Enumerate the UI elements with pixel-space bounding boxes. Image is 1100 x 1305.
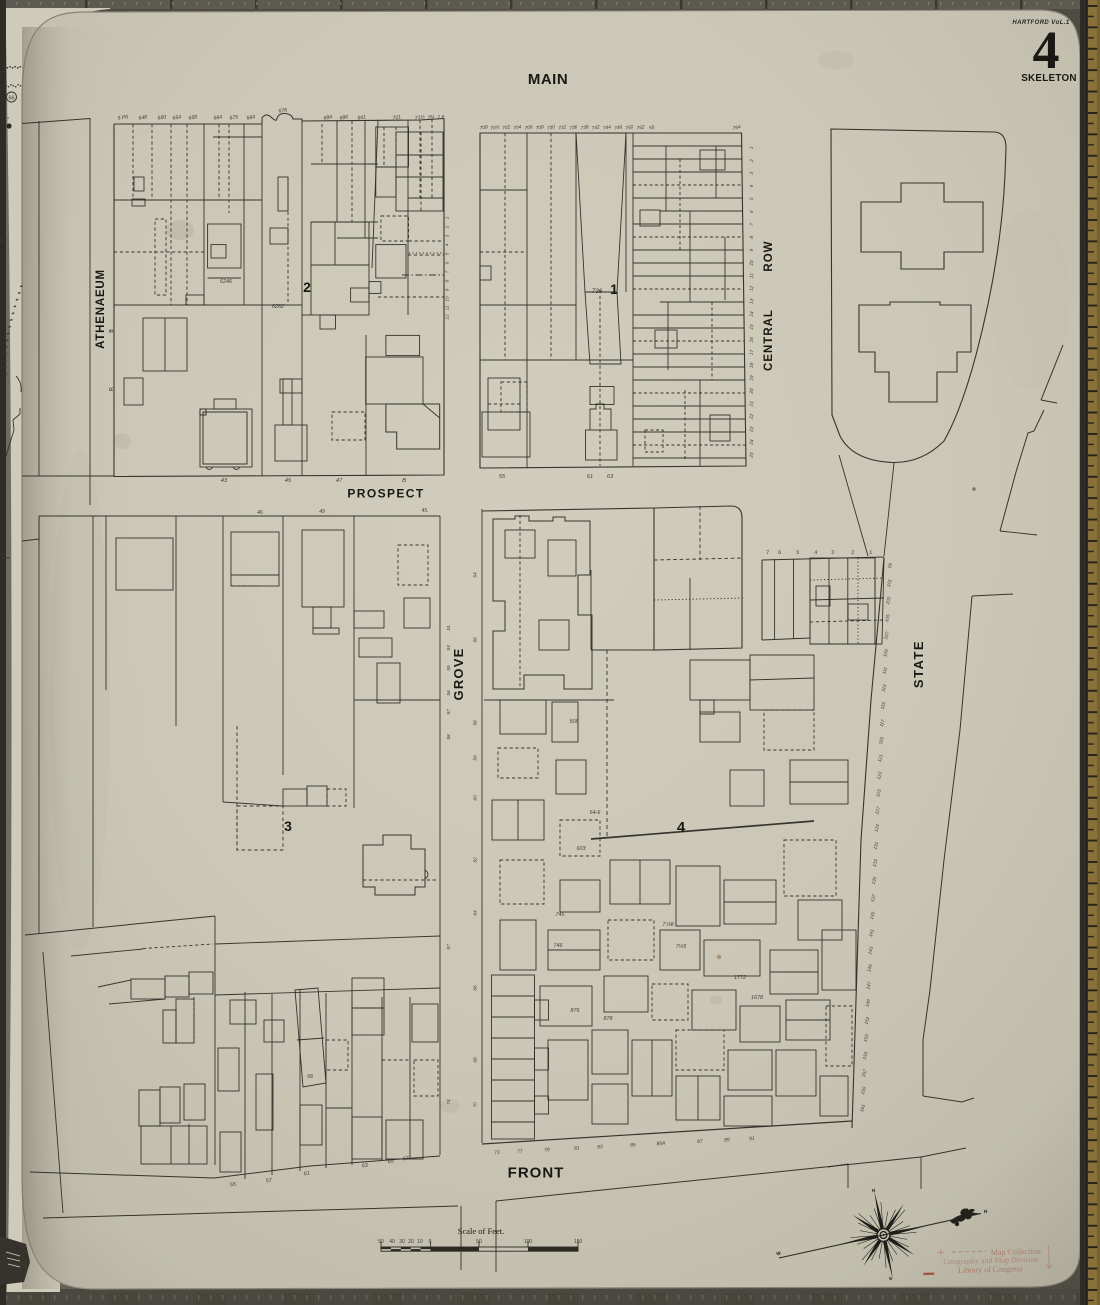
svg-text:650: 650 bbox=[157, 114, 167, 121]
svg-text:70: 70 bbox=[473, 1102, 479, 1108]
svg-text:64: 64 bbox=[473, 910, 479, 916]
svg-text:876: 876 bbox=[571, 1008, 580, 1014]
svg-text:2: 2 bbox=[303, 279, 311, 295]
svg-text:58: 58 bbox=[446, 734, 452, 740]
svg-text:ROW: ROW bbox=[763, 240, 775, 271]
svg-text:57: 57 bbox=[446, 944, 452, 950]
svg-text:7N: 7N bbox=[427, 115, 435, 122]
svg-text:53: 53 bbox=[446, 645, 452, 651]
svg-text:74: 74 bbox=[446, 1099, 452, 1105]
svg-text:68: 68 bbox=[473, 1057, 479, 1063]
svg-text:684: 684 bbox=[246, 114, 256, 121]
svg-text:6246: 6246 bbox=[220, 279, 232, 285]
svg-text:30: 30 bbox=[399, 1239, 405, 1245]
svg-text:4: 4 bbox=[445, 243, 450, 246]
svg-text:7.6: 7.6 bbox=[437, 115, 445, 122]
svg-text:40: 40 bbox=[389, 1239, 395, 1245]
svg-text:63: 63 bbox=[361, 1163, 368, 1170]
svg-text:91: 91 bbox=[749, 1136, 755, 1142]
svg-text:83: 83 bbox=[597, 1144, 603, 1150]
svg-text:691: 691 bbox=[357, 114, 367, 121]
svg-text:STATE: STATE bbox=[911, 640, 926, 688]
svg-text:648: 648 bbox=[138, 114, 148, 121]
svg-text:5: 5 bbox=[445, 252, 450, 255]
svg-text:R: R bbox=[109, 387, 115, 391]
svg-text:ST: ST bbox=[1, 549, 7, 555]
svg-text:745: 745 bbox=[556, 912, 566, 918]
svg-text:654: 654 bbox=[172, 114, 182, 121]
svg-text:81: 81 bbox=[574, 1145, 580, 1151]
svg-text:61: 61 bbox=[587, 474, 593, 480]
svg-text:1678: 1678 bbox=[751, 995, 763, 1001]
svg-text:85A: 85A bbox=[656, 1141, 666, 1148]
svg-text:61: 61 bbox=[303, 1171, 310, 1178]
svg-text:47: 47 bbox=[336, 478, 343, 484]
svg-text:4: 4 bbox=[1033, 20, 1060, 80]
svg-text:57: 57 bbox=[446, 709, 452, 715]
svg-text:B: B bbox=[402, 478, 406, 484]
svg-text:64-6: 64-6 bbox=[590, 810, 601, 816]
svg-text:59: 59 bbox=[473, 755, 479, 761]
svg-text:9: 9 bbox=[445, 288, 450, 291]
svg-text:736: 736 bbox=[592, 288, 603, 295]
svg-text:8: 8 bbox=[445, 279, 450, 282]
svg-text:68: 68 bbox=[307, 1074, 313, 1080]
svg-text:66: 66 bbox=[8, 96, 14, 102]
svg-text:11: 11 bbox=[445, 305, 450, 310]
svg-text:20: 20 bbox=[408, 1239, 414, 1245]
svg-text:6262: 6262 bbox=[272, 304, 284, 310]
svg-text:603: 603 bbox=[577, 846, 586, 852]
svg-text:746: 746 bbox=[554, 943, 563, 949]
svg-text:45.: 45. bbox=[422, 508, 429, 514]
svg-text:51: 51 bbox=[446, 625, 452, 631]
svg-text:7⅓5: 7⅓5 bbox=[676, 944, 687, 950]
svg-text:508: 508 bbox=[570, 719, 579, 725]
svg-text:55: 55 bbox=[446, 665, 452, 671]
svg-text:85: 85 bbox=[630, 1142, 636, 1148]
svg-text:60: 60 bbox=[473, 795, 479, 801]
svg-text:1: 1 bbox=[610, 281, 618, 297]
svg-text:45: 45 bbox=[285, 478, 292, 484]
svg-text:7⅕8: 7⅕8 bbox=[662, 922, 673, 928]
svg-text:89: 89 bbox=[724, 1137, 730, 1143]
svg-text:GROVE: GROVE bbox=[451, 648, 466, 701]
svg-text:3: 3 bbox=[445, 234, 450, 237]
svg-text:66: 66 bbox=[473, 985, 479, 991]
svg-text:PROSPECT: PROSPECT bbox=[347, 487, 424, 501]
svg-text:Scale of Feet.: Scale of Feet. bbox=[458, 1226, 505, 1236]
svg-text:12: 12 bbox=[445, 314, 450, 320]
svg-text:77: 77 bbox=[517, 1148, 523, 1154]
svg-text:701: 701 bbox=[392, 114, 402, 121]
svg-text:56: 56 bbox=[473, 637, 479, 643]
svg-text:62: 62 bbox=[473, 857, 479, 863]
svg-text:664: 664 bbox=[213, 114, 223, 121]
svg-text:73: 73 bbox=[494, 1150, 500, 1156]
svg-text:56: 56 bbox=[446, 690, 452, 696]
svg-text:676: 676 bbox=[278, 107, 288, 114]
svg-text:": " bbox=[7, 118, 9, 124]
svg-text:10: 10 bbox=[417, 1239, 423, 1245]
svg-text:4: 4 bbox=[677, 819, 686, 836]
svg-text:MAIN: MAIN bbox=[528, 71, 568, 88]
svg-text:878: 878 bbox=[604, 1016, 613, 1022]
svg-text:87: 87 bbox=[697, 1139, 703, 1145]
svg-text:58: 58 bbox=[473, 720, 479, 726]
svg-text:SKELETON: SKELETON bbox=[1021, 73, 1077, 84]
svg-text:43: 43 bbox=[221, 478, 228, 484]
svg-text:79: 79 bbox=[544, 1147, 550, 1153]
svg-text:684: 684 bbox=[323, 114, 333, 121]
svg-text:7: 7 bbox=[445, 270, 450, 273]
svg-text:55: 55 bbox=[499, 474, 506, 480]
svg-text:686: 686 bbox=[339, 114, 349, 121]
svg-text:Library of Congress: Library of Congress bbox=[958, 1264, 1023, 1275]
svg-text:46: 46 bbox=[257, 510, 263, 516]
svg-text:6: 6 bbox=[445, 261, 450, 264]
svg-text:ATHENAEUM: ATHENAEUM bbox=[95, 269, 107, 349]
svg-text:FRONT: FRONT bbox=[508, 1165, 565, 1182]
svg-text:1: 1 bbox=[445, 216, 450, 219]
svg-text:63: 63 bbox=[607, 474, 614, 480]
svg-text:49: 49 bbox=[319, 509, 325, 515]
svg-text:54: 54 bbox=[473, 572, 479, 578]
svg-text:658: 658 bbox=[188, 114, 198, 121]
svg-text:ST: ST bbox=[0, 237, 6, 243]
svg-text:3: 3 bbox=[284, 818, 292, 834]
svg-text:CENTRAL: CENTRAL bbox=[763, 309, 775, 371]
svg-text:1772: 1772 bbox=[734, 975, 746, 981]
svg-text:10: 10 bbox=[445, 296, 450, 302]
svg-text:675: 675 bbox=[229, 114, 239, 121]
svg-text:2: 2 bbox=[445, 225, 450, 229]
